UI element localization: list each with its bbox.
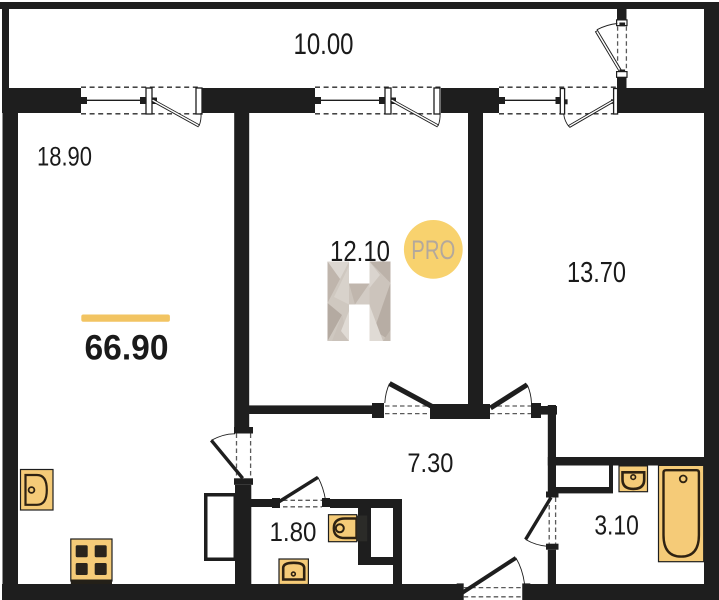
svg-text:12.10: 12.10 [330,236,390,268]
svg-text:7.30: 7.30 [407,448,453,478]
svg-text:13.70: 13.70 [567,257,626,289]
svg-text:1.80: 1.80 [270,517,317,547]
svg-text:PRO: PRO [411,235,455,265]
svg-text:18.90: 18.90 [37,142,92,172]
svg-text:3.10: 3.10 [594,509,639,540]
svg-text:66.90: 66.90 [85,329,169,368]
svg-text:10.00: 10.00 [294,28,354,61]
